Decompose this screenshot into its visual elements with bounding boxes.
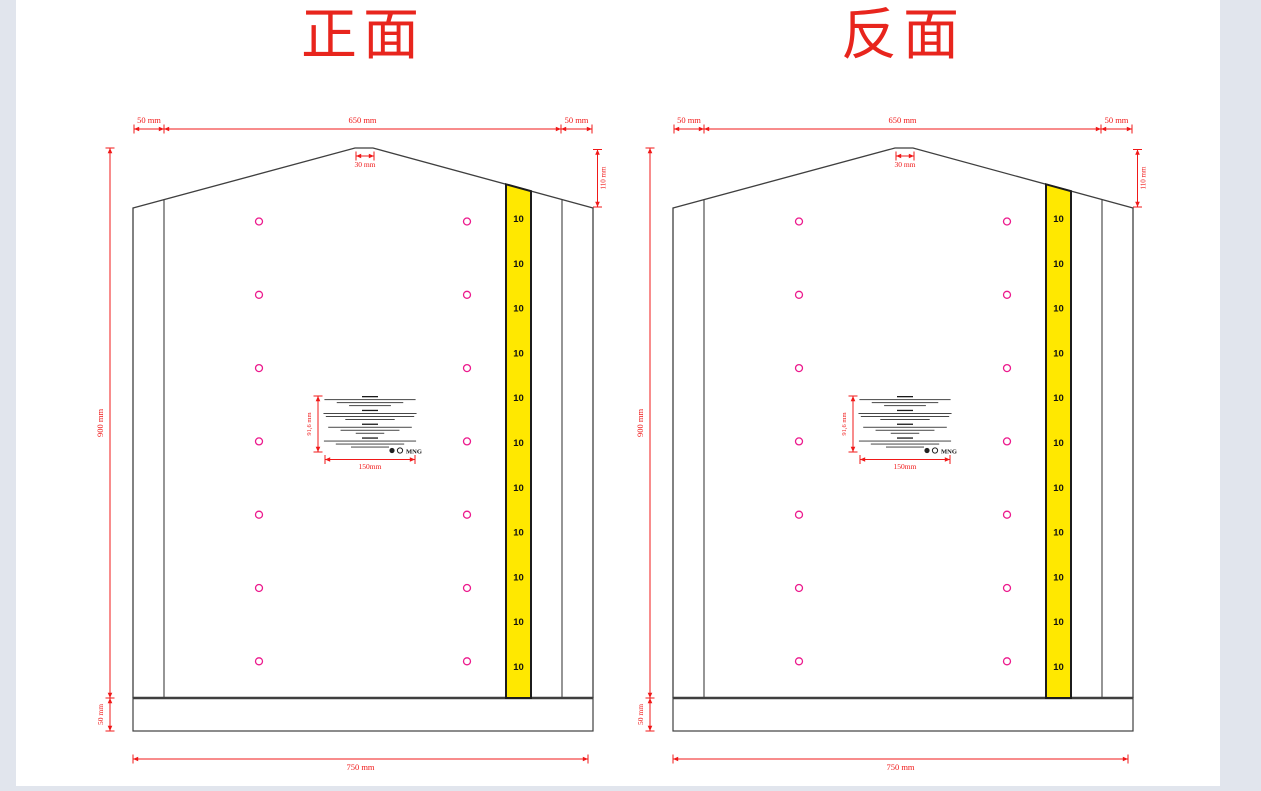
tally-mark: 10 [1053,662,1064,673]
bottom-band [673,698,1133,731]
recycle-icon [389,448,394,453]
vent-hole [796,511,803,518]
dim-arrow [1101,127,1106,132]
tally-mark: 10 [1053,304,1064,315]
dim-arrow [316,447,321,452]
label-text-line [880,419,929,420]
dim-arrow [673,757,678,762]
dim-top-left-seam-label: 50 mm [677,115,701,125]
dim-arrow [648,693,653,698]
warning-label: MNG91,6 mm150mm [306,396,422,471]
dim-arrow [1127,127,1132,132]
dim-top-center-label: 650 mm [888,115,916,125]
dim-top-right-seam-label: 50 mm [1105,115,1129,125]
drawing-canvas: 正面 反面 101010101010101010101050 mm650 mm5… [0,0,1261,791]
label-text-line [336,444,404,445]
vent-hole [796,658,803,665]
dim-shoulder-fold-label: 110 mm [600,166,608,189]
label-text-line [328,427,412,428]
tally-mark: 10 [1053,259,1064,270]
dim-arrow [108,726,113,731]
dim-arrow [648,726,653,731]
vent-hole [464,218,471,225]
tally-mark: 10 [513,572,524,583]
dim-arrow [860,457,865,462]
dim-total-width-label: 750 mm [346,762,374,772]
front-view-drawing: 101010101010101010101050 mm650 mm50 mm30… [95,115,608,772]
label-text-line [891,433,920,434]
dim-bottom-seam [646,698,655,731]
dim-arrow [674,127,679,132]
dim-arrow [325,457,330,462]
dim-shoulder-fold-label: 110 mm [1140,166,1148,189]
dim-arrow [945,457,950,462]
dim-arrow [648,148,653,153]
dim-arrow [1135,202,1140,207]
vent-hole [1004,438,1011,445]
label-text-line [861,416,949,417]
green-dot-icon [932,448,937,453]
label-section-header [362,410,378,411]
tally-mark: 10 [513,393,524,404]
tally-mark: 10 [1053,483,1064,494]
label-text-line [345,419,394,420]
dim-arrow [896,154,901,159]
label-section-header [362,424,378,425]
vent-hole [256,365,263,372]
vent-hole [256,585,263,592]
tally-mark: 10 [1053,393,1064,404]
dim-top-right-seam [561,125,592,134]
label-section-header [362,437,378,438]
dim-body-height [106,148,115,698]
dim-label-height [849,396,858,452]
tally-mark: 10 [513,662,524,673]
page-margin-right [1220,0,1261,791]
dim-body-height-label: 900 mm [635,409,645,437]
label-section-header [897,424,913,425]
dim-label-height-label: 91,6 mm [841,412,848,435]
tally-mark: 10 [513,617,524,628]
dim-arrow [909,154,914,159]
label-text-line [349,405,391,406]
tally-mark: 10 [1053,348,1064,359]
label-text-line [859,441,951,442]
dim-label-width-label: 150mm [359,462,382,471]
dim-arrow [1135,150,1140,155]
vent-hole [464,438,471,445]
dim-arrow [595,202,600,207]
vent-hole [796,365,803,372]
vent-hole [796,438,803,445]
vent-hole [256,511,263,518]
page-margin-left [0,0,16,791]
green-dot-icon [397,448,402,453]
label-text-line [337,402,404,403]
vent-hole [256,291,263,298]
vent-hole [1004,658,1011,665]
tally-mark: 10 [513,259,524,270]
brand-label: MNG [941,449,957,456]
dim-arrow [704,127,709,132]
vent-hole [1004,291,1011,298]
bottom-band [133,698,593,731]
label-text-line [876,430,935,431]
dim-arrow [108,148,113,153]
dim-top-center-label: 650 mm [348,115,376,125]
label-text-line [858,413,951,414]
vent-hole [1004,365,1011,372]
dim-label-width-label: 150mm [894,462,917,471]
dim-arrow [583,757,588,762]
label-text-line [884,405,926,406]
recycle-icon [924,448,929,453]
dim-arrow [108,693,113,698]
tally-mark: 10 [513,348,524,359]
label-text-line [326,416,414,417]
label-text-line [859,399,950,400]
page-margin-bottom [0,786,1261,791]
dim-arrow [159,127,164,132]
dim-label-height [314,396,323,452]
dim-arrow [356,154,361,159]
tally-mark: 10 [513,483,524,494]
dim-label-height-label: 91,6 mm [306,412,313,435]
bag-specification-drawing: 101010101010101010101050 mm650 mm50 mm30… [0,0,1261,791]
dim-bottom-seam-label: 50 mm [96,704,105,725]
tally-mark: 10 [513,214,524,225]
dim-arrow [587,127,592,132]
label-text-line [872,402,939,403]
tally-mark: 10 [513,528,524,539]
tally-mark: 10 [1053,572,1064,583]
vent-hole [796,218,803,225]
dim-arrow [699,127,704,132]
vent-hole [464,291,471,298]
back-view-drawing: 101010101010101010101050 mm650 mm50 mm30… [635,115,1148,772]
dim-arrow [648,698,653,703]
dim-arrow [851,447,856,452]
dim-arrow [108,698,113,703]
vent-hole [1004,585,1011,592]
dim-top-center [164,125,561,134]
dim-arrow [1096,127,1101,132]
label-section-header [897,437,913,438]
label-section-header [362,396,378,397]
dim-arrow [595,150,600,155]
label-text-line [871,444,939,445]
label-text-line [886,447,924,448]
tally-mark: 10 [1053,214,1064,225]
tally-mark: 10 [1053,617,1064,628]
dim-arrow [561,127,566,132]
label-section-header [897,410,913,411]
dim-arrow [164,127,169,132]
dim-top-left-seam-label: 50 mm [137,115,161,125]
dim-top-left-seam [134,125,164,134]
dim-bottom-seam [106,698,115,731]
vent-hole [256,438,263,445]
dim-bottom-seam-label: 50 mm [636,704,645,725]
label-text-line [324,399,415,400]
label-text-line [356,433,385,434]
vent-hole [464,658,471,665]
dim-top-right-seam [1101,125,1132,134]
vent-hole [1004,218,1011,225]
warning-label: MNG91,6 mm150mm [841,396,957,471]
dim-arrow [133,757,138,762]
tally-mark: 10 [513,438,524,449]
dim-arrow [851,396,856,401]
vent-hole [464,585,471,592]
dim-top-right-seam-label: 50 mm [565,115,589,125]
label-text-line [351,447,389,448]
dim-arrow [410,457,415,462]
dim-arrow [316,396,321,401]
tally-mark: 10 [513,304,524,315]
dim-total-width-label: 750 mm [886,762,914,772]
dim-top-left-seam [674,125,704,134]
dim-arrow [134,127,139,132]
label-text-line [323,413,416,414]
dim-top-center [704,125,1101,134]
vent-hole [256,658,263,665]
label-text-line [863,427,947,428]
vent-hole [464,511,471,518]
dim-arrow [1123,757,1128,762]
brand-label: MNG [406,449,422,456]
dim-arrow [556,127,561,132]
label-text-line [324,441,416,442]
vent-hole [464,365,471,372]
vent-hole [256,218,263,225]
vent-hole [796,291,803,298]
label-text-line [341,430,400,431]
dim-peak-flat-label: 30 mm [354,160,375,169]
tally-mark: 10 [1053,438,1064,449]
dim-peak-flat-label: 30 mm [894,160,915,169]
dim-arrow [369,154,374,159]
dim-body-height [646,148,655,698]
dim-body-height-label: 900 mm [95,409,105,437]
vent-hole [1004,511,1011,518]
vent-hole [796,585,803,592]
label-section-header [897,396,913,397]
tally-mark: 10 [1053,528,1064,539]
